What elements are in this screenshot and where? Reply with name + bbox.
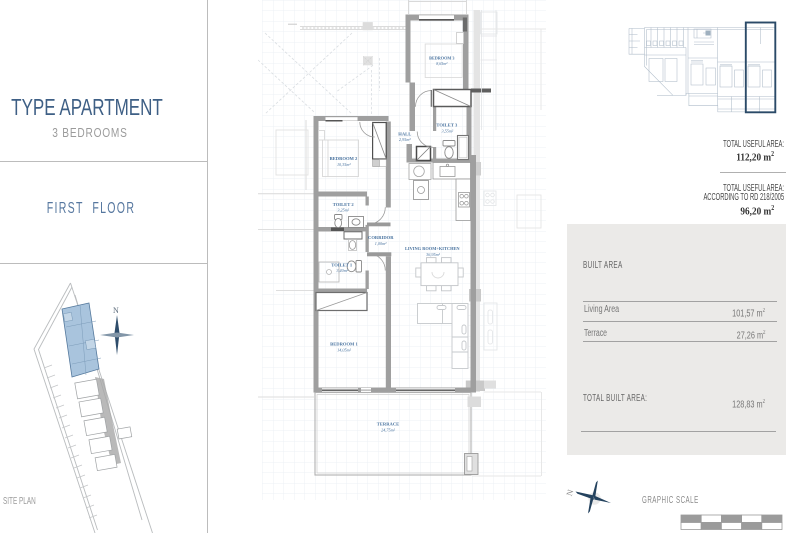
svg-text:TOILET 3: TOILET 3 [436,122,458,127]
svg-text:BEDROOM 3: BEDROOM 3 [429,56,454,61]
svg-text:N: N [564,488,575,497]
svg-text:HALL: HALL [398,132,411,137]
svg-text:BEDROOM 2: BEDROOM 2 [330,156,358,161]
svg-text:LIVING ROOM+KITCHEN: LIVING ROOM+KITCHEN [405,246,460,251]
svg-text:TOILET 1: TOILET 1 [331,263,353,268]
svg-text:CORRIDOR: CORRIDOR [368,235,394,240]
svg-text:TERRACE: TERRACE [377,422,399,427]
svg-text:TOILET 2: TOILET 2 [333,202,355,207]
svg-text:BEDROOM 1: BEDROOM 1 [330,342,358,347]
svg-text:N: N [113,306,119,315]
